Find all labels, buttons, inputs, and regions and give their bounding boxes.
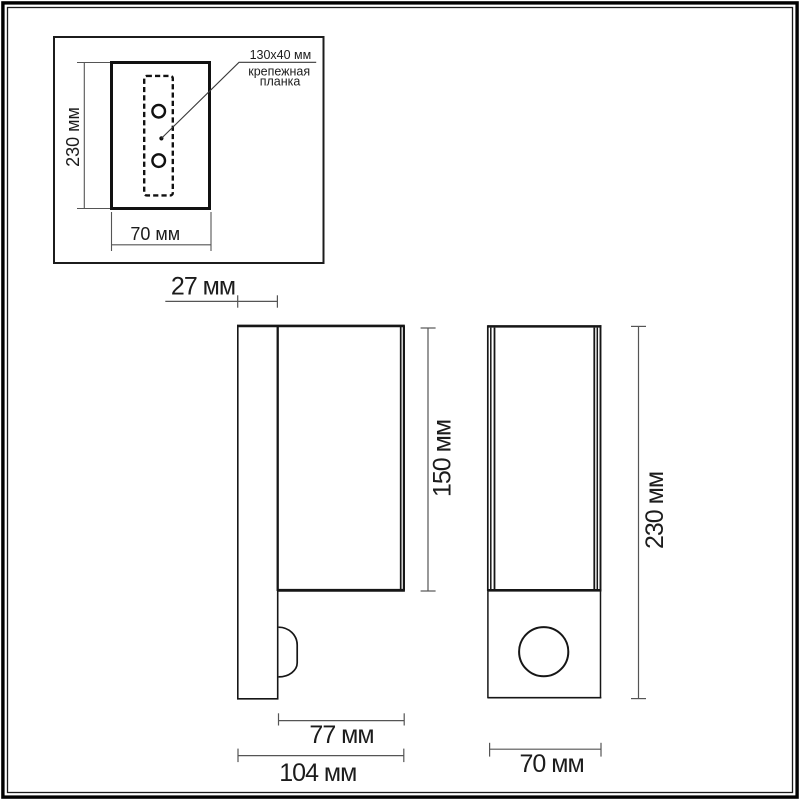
svg-text:130x40 мм: 130x40 мм — [250, 48, 312, 62]
svg-text:104 мм: 104 мм — [279, 759, 356, 787]
svg-text:планка: планка — [260, 75, 301, 89]
svg-text:70 мм: 70 мм — [520, 750, 584, 778]
svg-text:150 мм: 150 мм — [429, 420, 457, 497]
svg-text:230 мм: 230 мм — [63, 107, 83, 167]
svg-text:77 мм: 77 мм — [309, 721, 373, 749]
svg-text:70 мм: 70 мм — [130, 224, 180, 244]
svg-text:27 мм: 27 мм — [171, 273, 235, 301]
svg-text:230 мм: 230 мм — [641, 472, 669, 549]
